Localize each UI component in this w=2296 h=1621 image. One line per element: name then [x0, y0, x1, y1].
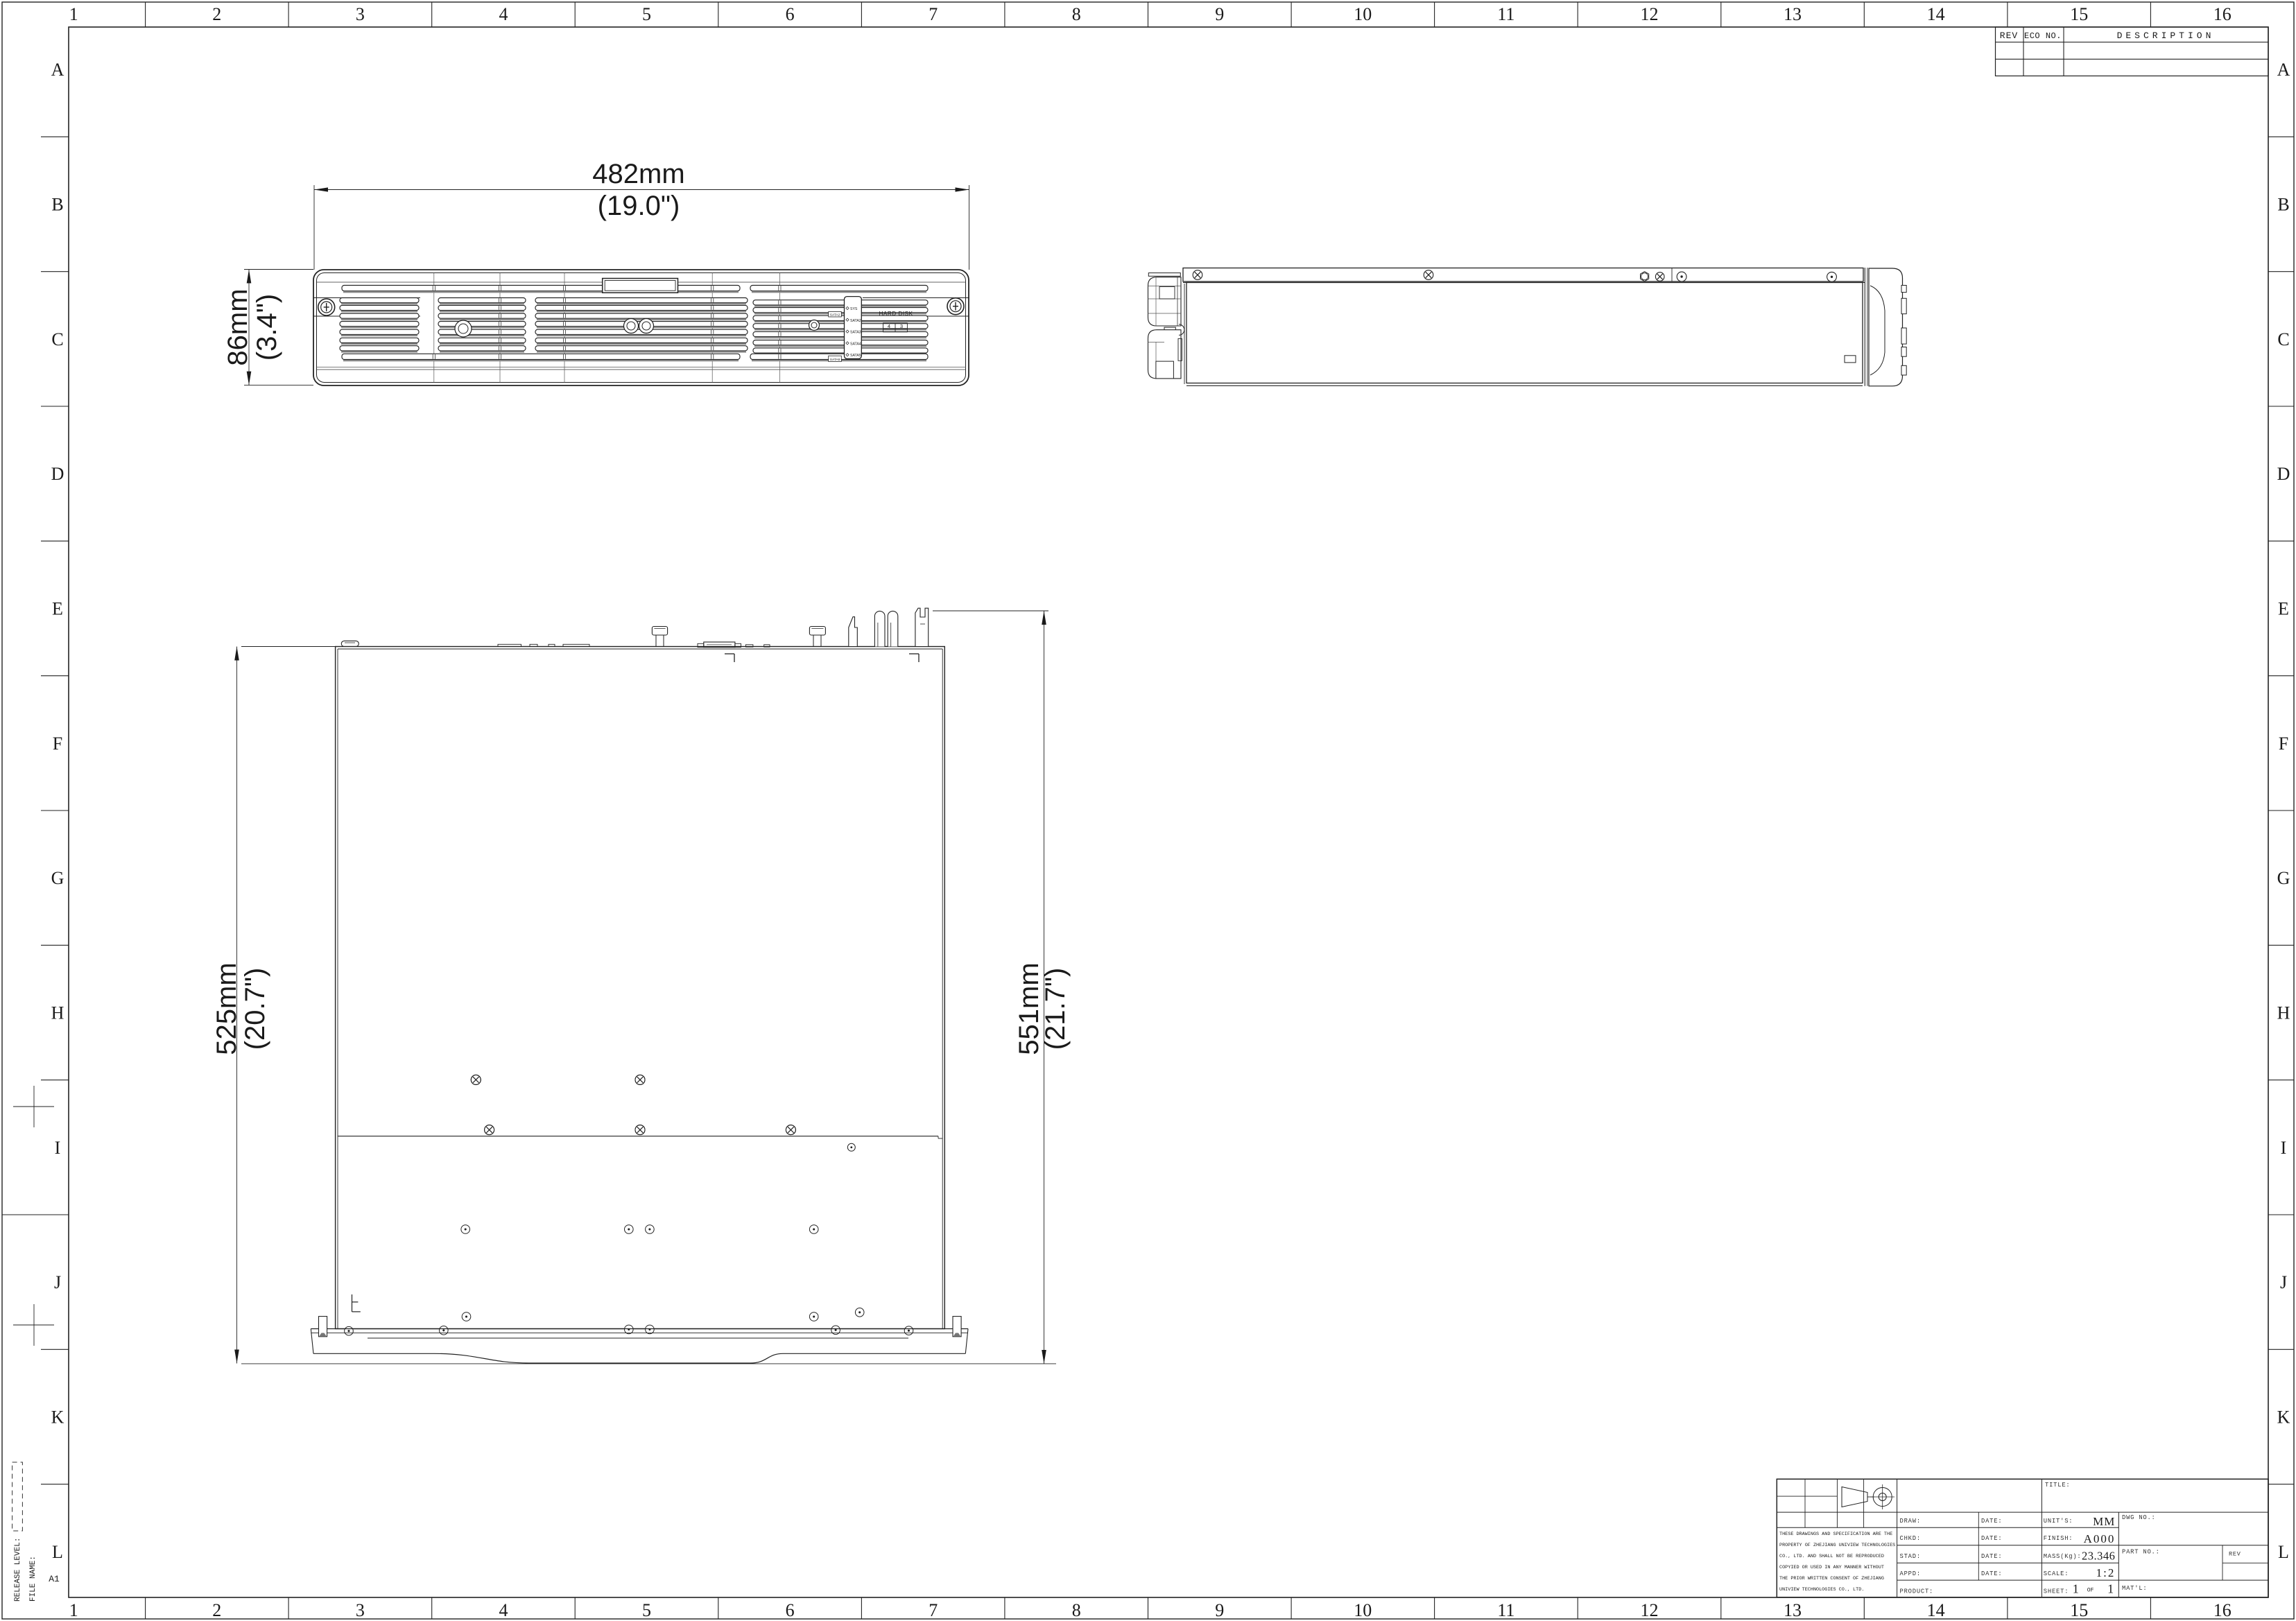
svg-text:J: J	[2280, 1272, 2287, 1292]
svg-text:86mm: 86mm	[223, 288, 253, 365]
svg-text:6: 6	[786, 1600, 795, 1620]
svg-text:15: 15	[2070, 1600, 2088, 1620]
svg-text:TITLE:: TITLE:	[2045, 1482, 2070, 1489]
svg-text:(20.7"): (20.7")	[240, 968, 270, 1050]
svg-text:A: A	[2277, 60, 2290, 80]
svg-text:11: 11	[1497, 1600, 1514, 1620]
svg-text:4: 4	[888, 323, 890, 329]
svg-text:13: 13	[1784, 4, 1802, 24]
svg-text:FILE NAME:: FILE NAME:	[29, 1556, 37, 1602]
svg-text:1: 1	[2073, 1582, 2079, 1596]
svg-text:SATA2: SATA2	[830, 313, 840, 318]
svg-text:D: D	[51, 464, 64, 484]
svg-text:13: 13	[1784, 1600, 1802, 1620]
svg-text:FINISH:: FINISH:	[2044, 1535, 2073, 1542]
svg-text:K: K	[2277, 1407, 2290, 1428]
svg-text:1: 1	[69, 4, 78, 24]
svg-text:K: K	[51, 1407, 64, 1428]
svg-text:DATE:: DATE:	[1981, 1535, 2002, 1542]
svg-text:23.346: 23.346	[2082, 1550, 2115, 1563]
svg-text:6: 6	[786, 4, 795, 24]
svg-text:SHEET:: SHEET:	[2044, 1588, 2069, 1595]
svg-text:SCALE:: SCALE:	[2044, 1570, 2069, 1577]
svg-text:I: I	[2281, 1138, 2287, 1158]
svg-text:APPD:: APPD:	[1900, 1570, 1921, 1577]
svg-text:L: L	[52, 1542, 63, 1562]
svg-text:10: 10	[1354, 4, 1372, 24]
svg-text:(21.7"): (21.7")	[1040, 968, 1071, 1050]
svg-text:DESCRIPTION: DESCRIPTION	[2117, 31, 2215, 41]
svg-text:16: 16	[2213, 4, 2232, 24]
svg-text:14: 14	[1927, 4, 1945, 24]
svg-text:UNIT'S:: UNIT'S:	[2044, 1518, 2073, 1525]
svg-text:MAT'L:: MAT'L:	[2122, 1585, 2147, 1592]
svg-text:COPYIED OR USED IN ANY MANNER: COPYIED OR USED IN ANY MANNER WITHOUT	[1779, 1565, 1884, 1570]
svg-text:2: 2	[212, 4, 221, 24]
svg-text:E: E	[52, 599, 63, 619]
svg-text:THESE DRAWINGS AND SPECIFICATI: THESE DRAWINGS AND SPECIFICATION ARE THE	[1779, 1532, 1892, 1537]
svg-text:DATE:: DATE:	[1981, 1570, 2002, 1577]
svg-text:MM: MM	[2093, 1515, 2115, 1528]
svg-text:525mm: 525mm	[212, 962, 242, 1055]
svg-text:SATA2: SATA2	[850, 319, 861, 323]
svg-text:8: 8	[1072, 1600, 1081, 1620]
svg-text:THE PRIOR WRITTEN CONSENT OF Z: THE PRIOR WRITTEN CONSENT OF ZHEJIANG	[1779, 1576, 1884, 1581]
svg-text:3: 3	[356, 1600, 365, 1620]
svg-text:5: 5	[642, 1600, 651, 1620]
svg-text:A000: A000	[2084, 1532, 2116, 1545]
svg-text:D: D	[2277, 464, 2290, 484]
svg-text:F: F	[2279, 734, 2288, 754]
svg-text:PROPERTY OF ZHEJIANG UNIVIEW T: PROPERTY OF ZHEJIANG UNIVIEW TECHNOLOGIE…	[1779, 1543, 1895, 1548]
svg-text:REV: REV	[2000, 31, 2018, 41]
svg-text:1:2: 1:2	[2096, 1566, 2116, 1579]
svg-text:H: H	[51, 1003, 64, 1023]
svg-text:14: 14	[1927, 1600, 1945, 1620]
svg-text:SATA6: SATA6	[830, 358, 840, 362]
svg-text:4: 4	[499, 4, 508, 24]
svg-text:SATA5: SATA5	[850, 354, 861, 358]
svg-text:CHKD:: CHKD:	[1900, 1535, 1921, 1542]
svg-text:1: 1	[2107, 1582, 2114, 1596]
svg-text:4: 4	[499, 1600, 508, 1620]
svg-text:H: H	[2277, 1003, 2290, 1023]
svg-text:G: G	[51, 868, 64, 888]
svg-text:F: F	[53, 734, 62, 754]
svg-text:7: 7	[929, 4, 938, 24]
svg-text:E: E	[2278, 599, 2289, 619]
svg-text:5: 5	[642, 4, 651, 24]
svg-text:G: G	[2277, 868, 2290, 888]
svg-text:8: 8	[1072, 4, 1081, 24]
svg-text:12: 12	[1641, 4, 1659, 24]
svg-text:RELEASE LEVEL:: RELEASE LEVEL:	[14, 1538, 22, 1602]
svg-text:SATA4: SATA4	[850, 342, 861, 346]
svg-text:CO., LTD. AND SHALL NOT BE REP: CO., LTD. AND SHALL NOT BE REPRODUCED	[1779, 1554, 1884, 1559]
svg-text:A: A	[51, 60, 64, 80]
svg-text:3: 3	[900, 323, 903, 329]
svg-text:9: 9	[1215, 4, 1224, 24]
svg-text:REV: REV	[2229, 1551, 2241, 1558]
svg-text:7: 7	[929, 1600, 938, 1620]
svg-text:15: 15	[2070, 4, 2088, 24]
svg-text:9: 9	[1215, 1600, 1224, 1620]
svg-text:UNIVIEW TECHNOLOGIES CO., LTD.: UNIVIEW TECHNOLOGIES CO., LTD.	[1779, 1587, 1864, 1593]
svg-text:C: C	[2277, 329, 2289, 349]
svg-text:SATA3: SATA3	[850, 331, 861, 335]
svg-text:11: 11	[1497, 4, 1514, 24]
svg-text:J: J	[54, 1272, 61, 1292]
svg-text:ECO NO.: ECO NO.	[2024, 31, 2062, 41]
svg-text:(19.0"): (19.0")	[598, 191, 680, 221]
svg-text:10: 10	[1354, 1600, 1372, 1620]
svg-text:HARD DISK: HARD DISK	[879, 311, 913, 317]
svg-text:DATE:: DATE:	[1981, 1553, 2002, 1560]
svg-text:12: 12	[1641, 1600, 1659, 1620]
svg-text:B: B	[51, 195, 63, 215]
svg-text:B: B	[2277, 195, 2289, 215]
svg-text:3: 3	[356, 4, 365, 24]
svg-text:PART NO.:: PART NO.:	[2122, 1549, 2160, 1556]
svg-text:(3.4"): (3.4")	[252, 294, 282, 361]
svg-text:DWG NO.:: DWG NO.:	[2122, 1514, 2156, 1521]
svg-text:482mm: 482mm	[592, 159, 684, 189]
svg-text:2: 2	[212, 1600, 221, 1620]
svg-text:A1: A1	[49, 1574, 60, 1584]
svg-text:I: I	[55, 1138, 61, 1158]
svg-text:SYS: SYS	[850, 307, 858, 311]
svg-text:DRAW:: DRAW:	[1900, 1518, 1921, 1525]
svg-text:1: 1	[69, 1600, 78, 1620]
svg-text:16: 16	[2213, 1600, 2232, 1620]
svg-text:DATE:: DATE:	[1981, 1518, 2002, 1525]
svg-text:C: C	[51, 329, 63, 349]
svg-text:OF: OF	[2087, 1588, 2094, 1594]
svg-text:PRODUCT:: PRODUCT:	[1900, 1588, 1934, 1595]
svg-text:MASS(Kg):: MASS(Kg):	[2044, 1553, 2082, 1560]
svg-text:STAD:: STAD:	[1900, 1553, 1921, 1560]
svg-text:L: L	[2278, 1542, 2289, 1562]
